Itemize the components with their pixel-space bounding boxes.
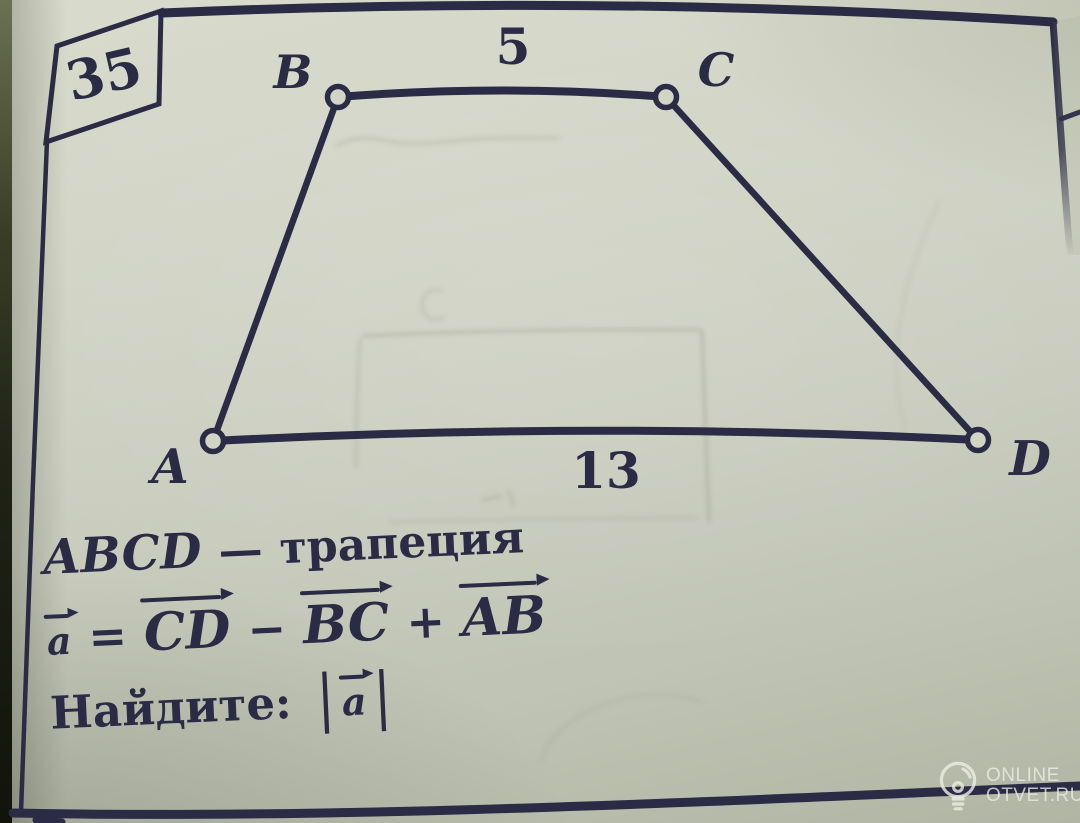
adjacent-cell-shade — [1053, 16, 1080, 255]
vector-bc: BC — [302, 596, 391, 652]
vertex-b-point — [328, 87, 349, 108]
side-bc-length: 5 — [496, 22, 531, 72]
vector-a-magnitude: a — [341, 682, 367, 721]
vector-cd: CD — [143, 604, 232, 660]
statement-word: трапеция — [278, 512, 524, 574]
lightbulb-icon — [934, 758, 982, 814]
question-label: Найдите: — [49, 676, 293, 740]
watermark-text: ONLINE OTVET.RU — [986, 766, 1080, 806]
watermark: ONLINE OTVET.RU — [934, 758, 1080, 814]
side-ad-length: 13 — [571, 446, 641, 496]
side-bc — [338, 91, 666, 98]
vertex-a-point — [203, 431, 224, 452]
abs-bar-open: | — [315, 667, 336, 730]
vertex-label-c: C — [698, 47, 735, 93]
watermark-line1: ONLINE — [986, 766, 1080, 786]
problem-text-block: ABCD — трапеция a = CD − BC + AB Найдите… — [42, 504, 711, 738]
side-ab — [213, 97, 338, 441]
statement-dash: — — [217, 524, 263, 577]
vertex-c-point — [656, 87, 677, 108]
equals-sign: = — [87, 612, 128, 660]
vector-ab: AB — [461, 589, 548, 645]
vertex-d-point — [968, 430, 989, 451]
vector-a: a — [46, 622, 72, 661]
textbook-page-photo: 35 B C A D 5 13 ABCD — трапеция a = CD −… — [0, 0, 1080, 823]
vertex-label-a: A — [151, 443, 188, 491]
side-ad — [213, 431, 978, 441]
vertex-label-b: B — [274, 49, 313, 95]
statement-figure: ABCD — [42, 523, 203, 586]
minus-sign: − — [246, 605, 287, 653]
plus-sign: + — [405, 598, 446, 646]
problem-number: 35 — [61, 39, 146, 109]
watermark-line2: OTVET.RU — [986, 786, 1080, 806]
abs-bar-close: | — [372, 664, 393, 727]
vertex-label-d: D — [1009, 435, 1051, 483]
trapezoid-figure — [203, 87, 989, 452]
side-cd — [666, 97, 978, 440]
